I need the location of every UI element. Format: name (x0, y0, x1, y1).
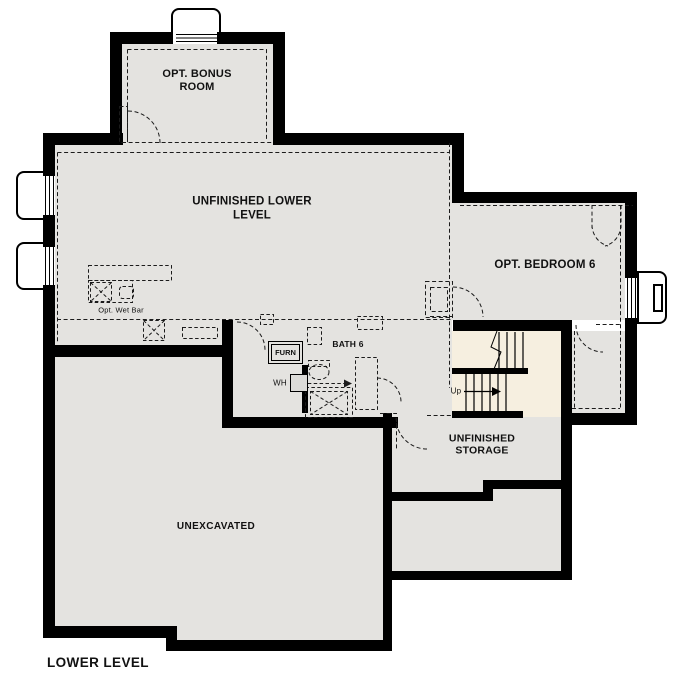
bath-door (377, 378, 401, 402)
label-stairs-up: Up (451, 386, 462, 395)
window-glazing-lines (46, 35, 636, 319)
storage-door (396, 418, 427, 449)
room-label-lower-level: UNFINISHED LOWER LEVEL (192, 195, 312, 222)
furnace-label: FURN (271, 344, 300, 361)
label-wet-bar: Opt. Wet Bar (98, 307, 144, 316)
plan-title: LOWER LEVEL (47, 655, 149, 670)
label-water-heater: WH (273, 378, 287, 387)
support-post-boxes (144, 315, 274, 341)
wet-bar-fixtures (89, 266, 172, 303)
bonus-room-door (120, 107, 161, 144)
bedroom-closet-doors (592, 205, 621, 246)
stair-treads (466, 331, 523, 411)
water-heater-box (290, 374, 308, 392)
hall-door (237, 322, 265, 350)
floor-plan: FURN OPT. BONUS ROOM UNFINISHED LOWER LE… (0, 0, 687, 687)
bath-arrow-head (344, 380, 352, 388)
under-stair-closet-door (576, 325, 603, 352)
room-label-bath-6: BATH 6 (330, 339, 366, 349)
room-label-unexcavated: UNEXCAVATED (177, 521, 255, 533)
door-swing-arcs (120, 107, 622, 450)
unfinished-perimeter-dashes (57, 50, 633, 416)
room-label-bedroom-6: OPT. BEDROOM 6 (494, 259, 595, 273)
room-label-bonus: OPT. BONUS ROOM (154, 68, 240, 94)
bedroom-door (426, 282, 484, 318)
furnace-box: FURN (268, 341, 303, 364)
bath-fixtures (296, 317, 383, 418)
room-label-storage: UNFINISHED STORAGE (432, 433, 532, 458)
